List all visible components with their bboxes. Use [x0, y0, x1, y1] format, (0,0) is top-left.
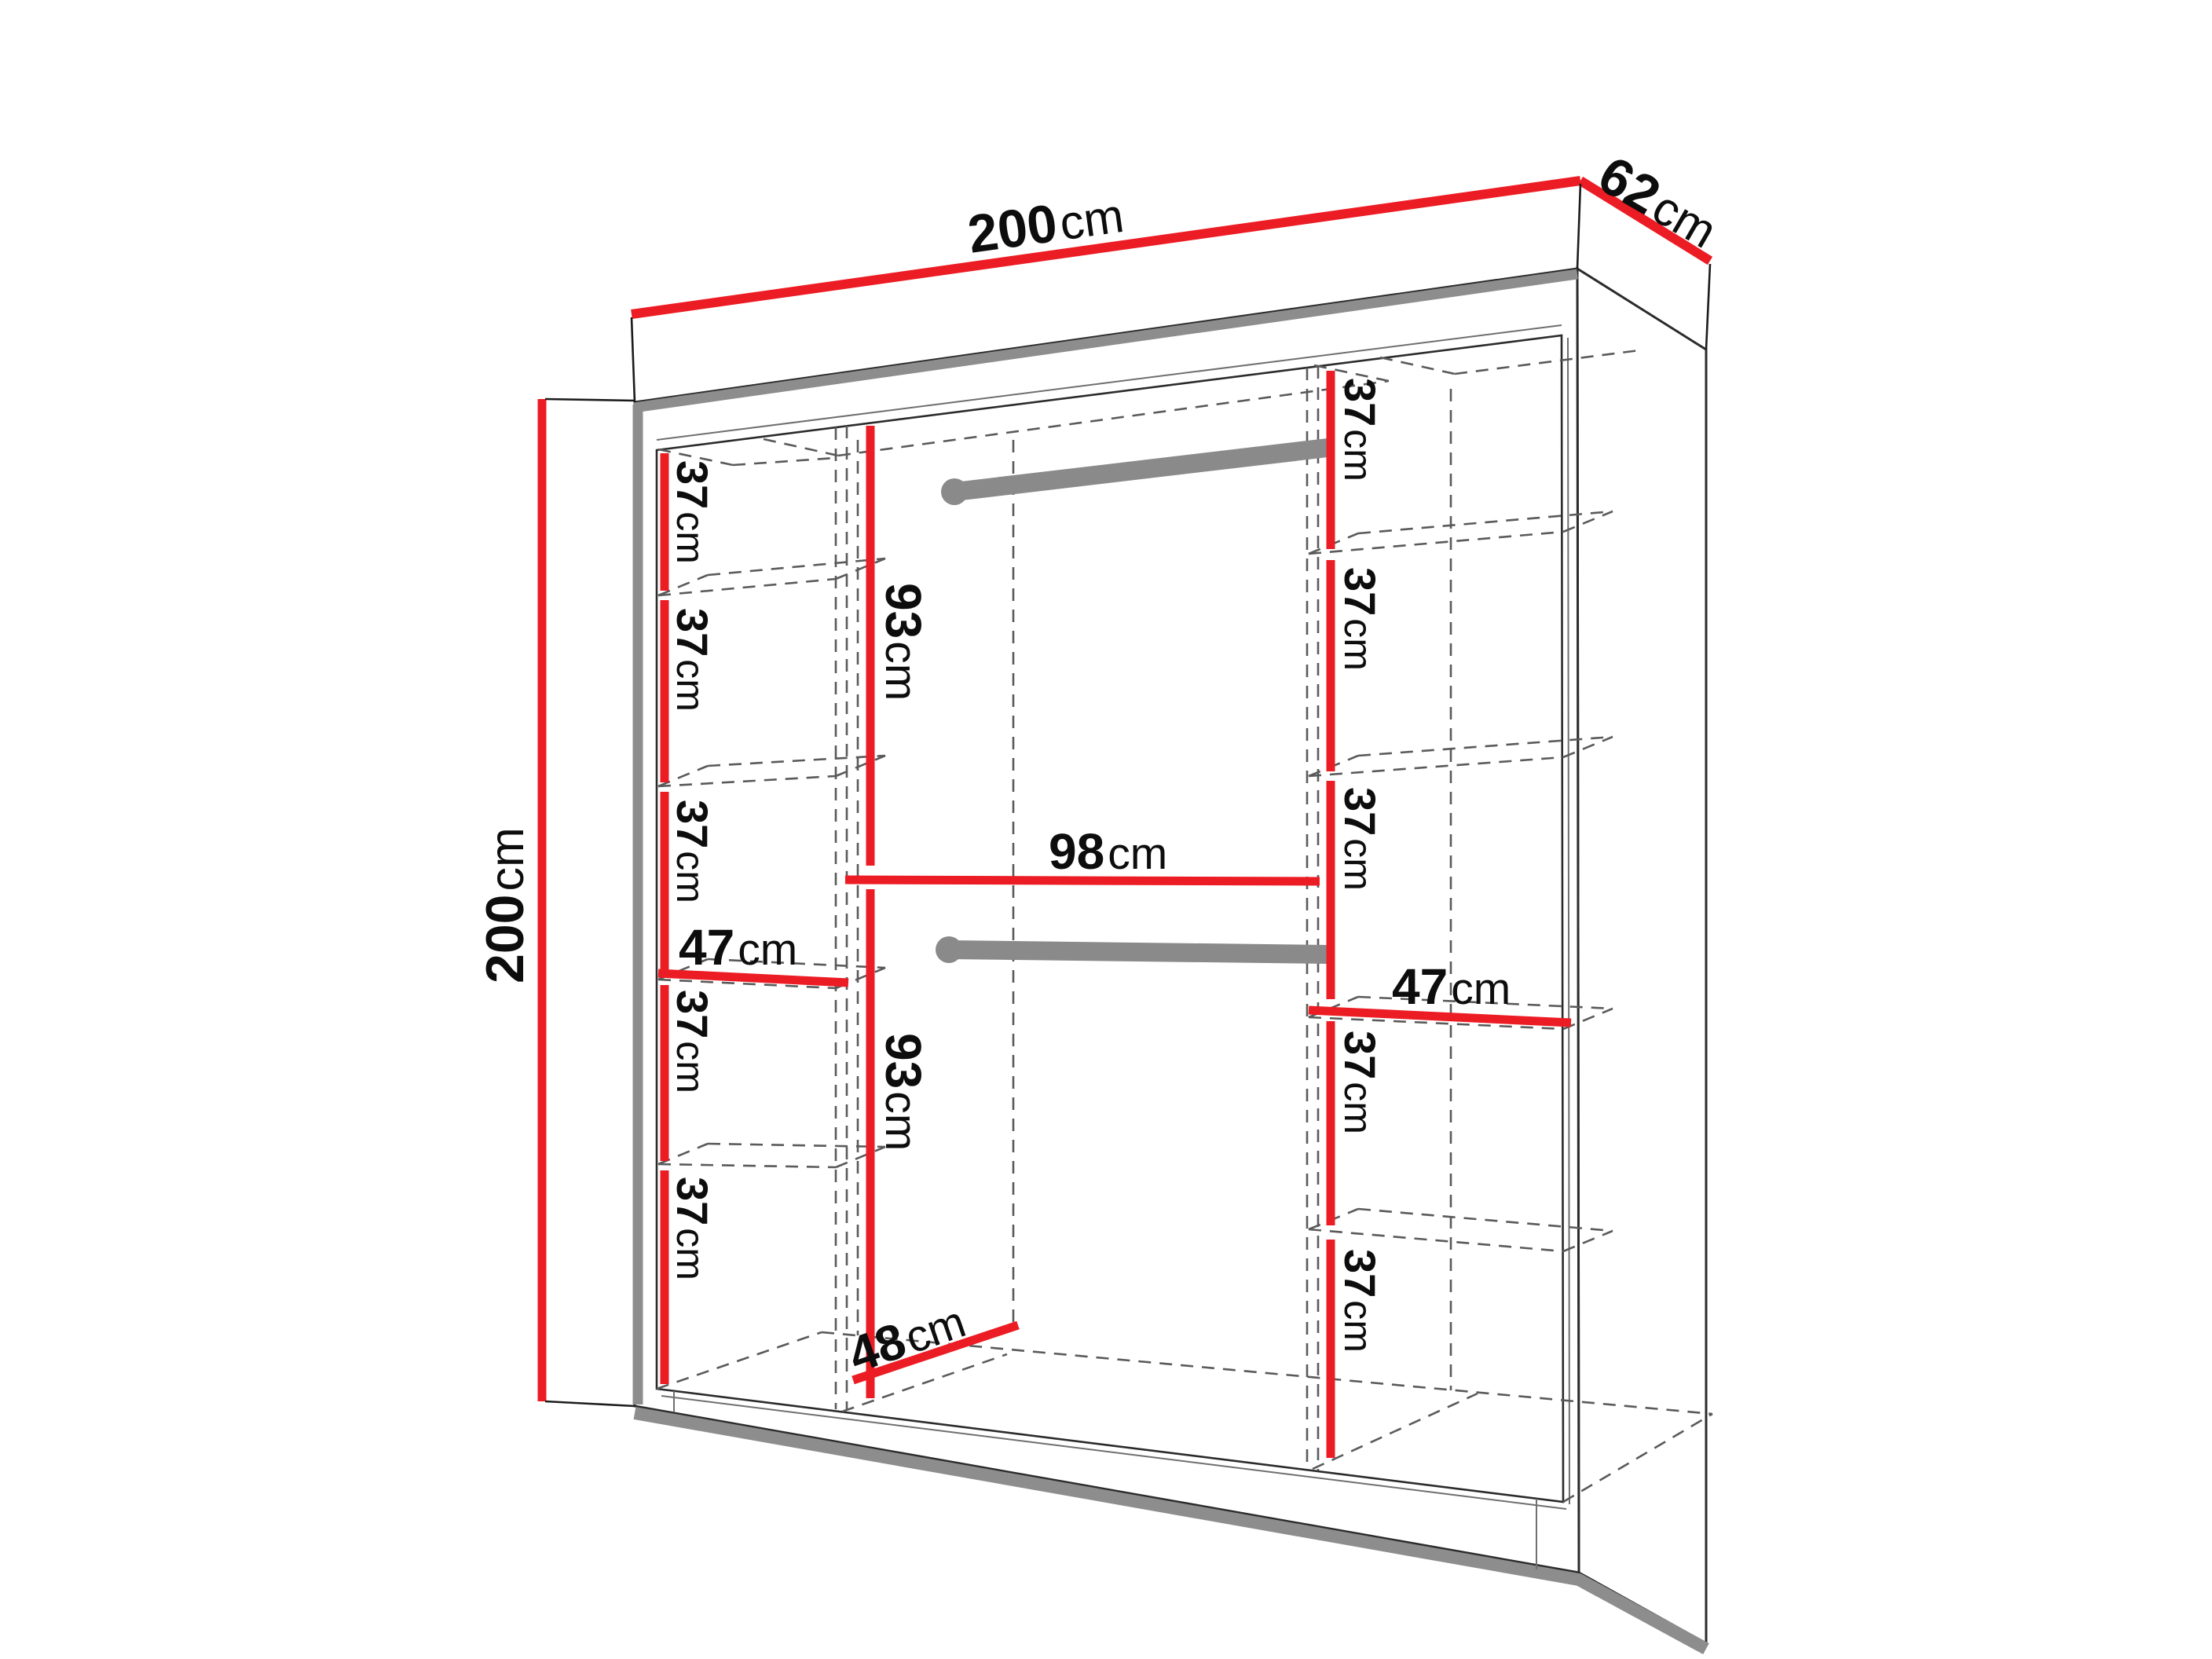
hanging-rod-top-cap [941, 478, 968, 505]
label-right-shelf-3: 37cm [1335, 787, 1385, 891]
label-right-shelf-2: 37cm [1335, 567, 1385, 671]
label-middle-width: 98cm [1049, 823, 1167, 880]
label-height: 200cm [475, 827, 535, 983]
wardrobe-side-face [1577, 269, 1706, 1643]
extension-line [1706, 264, 1710, 350]
label-hanging-bottom: 93cm [875, 1033, 932, 1151]
label-hanging-top: 93cm [875, 583, 932, 701]
hanging-rod-bottom-cap [936, 936, 962, 963]
extension-line [632, 317, 635, 402]
extension-line [545, 1401, 635, 1406]
label-left-shelf-3: 37cm [668, 800, 717, 903]
dim-middle-width [845, 880, 1320, 881]
label-right-shelf-1: 37cm [1335, 378, 1385, 482]
label-right-shelf-5: 37cm [1335, 1249, 1385, 1353]
interior-opening [657, 335, 1563, 1502]
label-left-shelf-2: 37cm [668, 608, 717, 712]
hanging-rod-bottom [949, 950, 1328, 954]
label-depth: 62cm [1589, 145, 1728, 259]
extension-line [545, 399, 635, 401]
label-right-shelf-4: 37cm [1335, 1031, 1385, 1134]
extension-line [1577, 184, 1580, 269]
label-right-column-width: 47cm [1392, 958, 1511, 1015]
label-left-shelf-1: 37cm [668, 460, 717, 564]
label-left-column-width: 47cm [679, 919, 797, 976]
label-left-shelf-4: 37cm [668, 990, 717, 1093]
wardrobe-diagram-page: 200cm 62cm 200cm 37cm 37cm 37cm 37cm 37c… [0, 0, 2212, 1659]
label-left-shelf-5: 37cm [668, 1177, 717, 1280]
wardrobe-diagram: 200cm 62cm 200cm 37cm 37cm 37cm 37cm 37c… [0, 0, 2212, 1659]
